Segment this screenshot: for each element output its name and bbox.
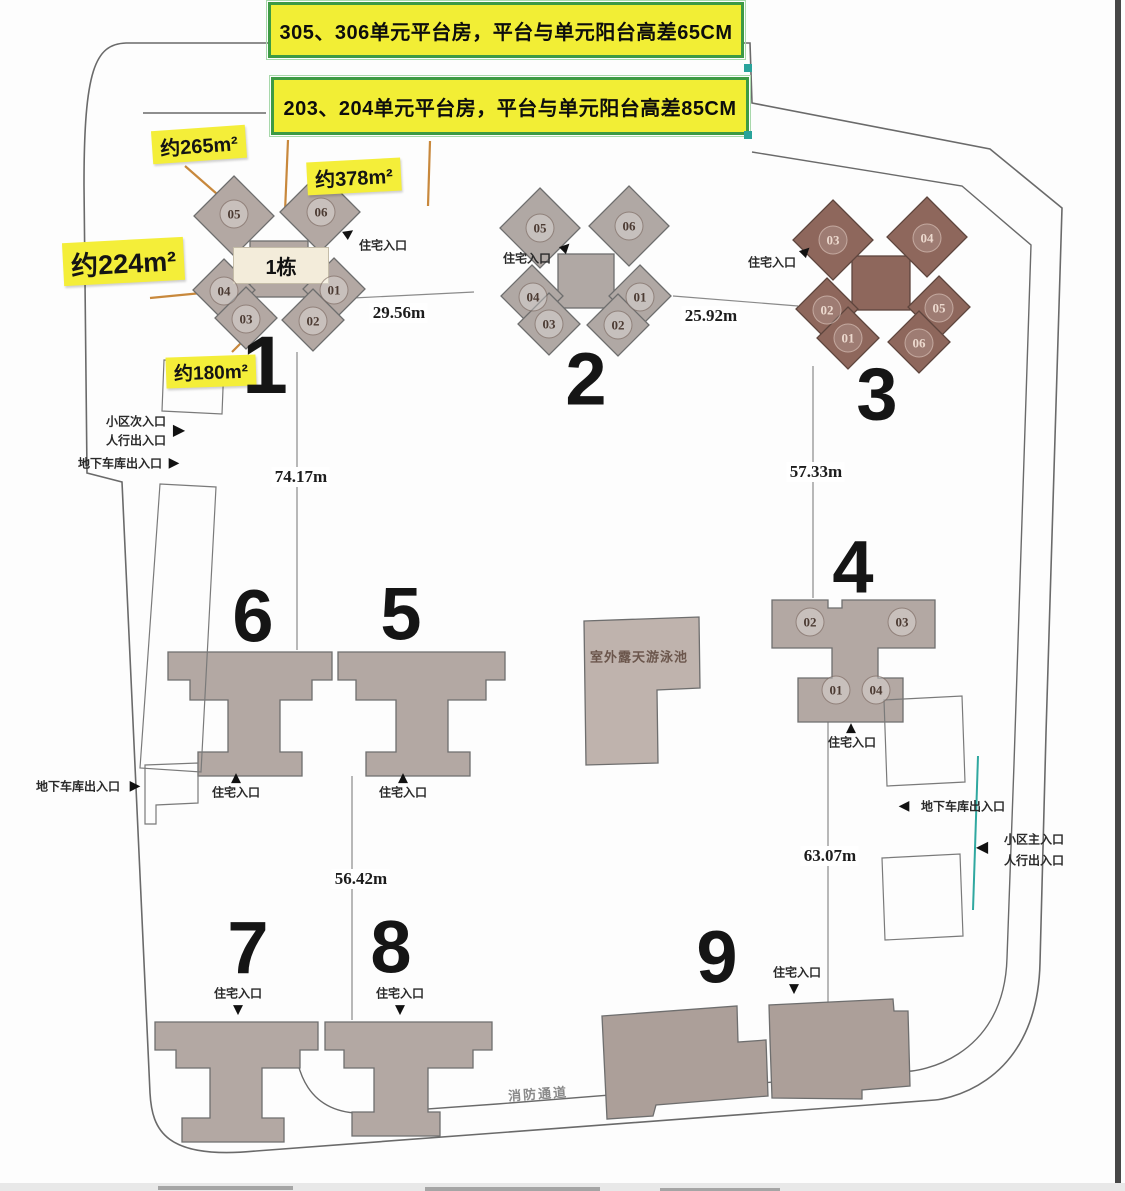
b1-unit-01: 01 [320, 276, 349, 305]
entrance-label-b7: 住宅入口 [214, 985, 262, 1002]
garage-exit-label-left-top: 地下车库出入口 [78, 455, 162, 472]
site-plan-canvas [0, 0, 1125, 1191]
building-9-right-shape [769, 999, 910, 1099]
dim-line-b2-b3 [673, 296, 798, 306]
entrance-arrow-icon-b9: ▼ [789, 983, 799, 996]
building-3-number: 3 [856, 352, 895, 437]
building-9-left-shape [602, 1006, 768, 1119]
building-8-number: 8 [370, 905, 409, 990]
b1-unit-03: 03 [232, 305, 261, 334]
building-5-number: 5 [380, 572, 419, 657]
garage-exit-label-right: 地下车库出入口 [921, 798, 1005, 815]
entrance-arrow-icon-b8: ▼ [395, 1004, 405, 1017]
building-6-number: 6 [232, 574, 271, 659]
selection-handle-bottom[interactable] [744, 131, 752, 139]
building-7-shape [155, 1022, 318, 1142]
b2-unit-06: 06 [615, 212, 644, 241]
entrance-label-b5: 住宅入口 [379, 784, 427, 801]
garage-exit-arrow-icon-left-top: ▶ [169, 456, 180, 470]
building-8-shape [325, 1022, 492, 1136]
secondary-entrance-label: 小区次入口 [106, 413, 166, 430]
garage-exit-arrow-icon-right: ◀ [899, 799, 910, 813]
building-7-number: 7 [227, 906, 266, 991]
secondary-entrance-arrow-icon: ▶ [173, 422, 185, 438]
building-5-shape [338, 652, 505, 776]
area-label-265: 约265m² [151, 125, 247, 164]
dimension-b4-b9: 63.07m [801, 846, 859, 866]
b4-unit-04: 04 [862, 676, 891, 705]
building-2-shape [500, 186, 671, 356]
building-4-number: 4 [832, 525, 871, 610]
b2-unit-02: 02 [604, 311, 633, 340]
pool-label: 室外露天游泳池 [590, 647, 688, 666]
area-label-378: 约378m² [306, 158, 401, 196]
b1-unit-04: 04 [210, 277, 239, 306]
entrance-label-b4: 住宅入口 [828, 734, 876, 751]
b1-unit-06: 06 [307, 198, 336, 227]
site-plan-screenshot: 305、306单元平台房，平台与单元阳台高差65CM 203、204单元平台房，… [0, 0, 1125, 1191]
dimension-b3-b4: 57.33m [787, 462, 845, 482]
b2-unit-05: 05 [526, 214, 555, 243]
dimension-b1-b6: 74.17m [272, 467, 330, 487]
entrance-label-b8: 住宅入口 [376, 985, 424, 1002]
pedestrian-exit-label-left: 人行出入口 [106, 432, 166, 449]
screenshot-right-edge [1115, 0, 1121, 1191]
b2-unit-03: 03 [535, 310, 564, 339]
banner-305-306: 305、306单元平台房，平台与单元阳台高差65CM [268, 2, 744, 58]
pool-shape [584, 617, 700, 765]
b4-unit-01: 01 [822, 676, 851, 705]
pedestrian-exit-label-right: 人行出入口 [1004, 852, 1064, 869]
entrance-label-b3: 住宅入口 [748, 254, 796, 271]
area-label-224: 约224m² [62, 237, 185, 286]
building-3-shape [793, 197, 970, 373]
main-entrance-label: 小区主入口 [1004, 831, 1064, 848]
b3-unit-02: 02 [813, 296, 842, 325]
building-6-shape [168, 652, 332, 776]
outline-rect-right-b [882, 854, 963, 940]
entrance-label-b1: 住宅入口 [359, 237, 407, 254]
b1-unit-02: 02 [299, 307, 328, 336]
garage-exit-arrow-icon-left-bottom: ▶ [130, 779, 141, 793]
b4-unit-02: 02 [796, 608, 825, 637]
bottom-artifact-2 [425, 1187, 600, 1191]
b3-unit-05: 05 [925, 294, 954, 323]
building-2-number: 2 [565, 337, 604, 422]
building-9-number: 9 [696, 915, 735, 1000]
b4-unit-03: 03 [888, 608, 917, 637]
bottom-artifact-1 [158, 1186, 293, 1190]
dimension-b5-b8: 56.42m [332, 869, 390, 889]
entrance-label-b2: 住宅入口 [503, 250, 551, 267]
leader-banner-right [428, 141, 430, 206]
entrance-arrow-icon-b7: ▼ [233, 1004, 243, 1017]
b3-unit-03: 03 [819, 226, 848, 255]
dimension-b1-b2: 29.56m [370, 303, 428, 323]
selection-handle-top[interactable] [744, 64, 752, 72]
outline-step-left [145, 763, 198, 824]
teal-line [973, 756, 978, 910]
b2-unit-01: 01 [626, 283, 655, 312]
dimension-b2-b3: 25.92m [682, 306, 740, 326]
entrance-label-b6: 住宅入口 [212, 784, 260, 801]
b2-unit-04: 04 [519, 283, 548, 312]
b3-unit-06: 06 [905, 329, 934, 358]
b3-unit-01: 01 [834, 324, 863, 353]
outline-ramp-long [140, 484, 216, 772]
b3-unit-04: 04 [913, 224, 942, 253]
entrance-label-b9: 住宅入口 [773, 964, 821, 981]
main-entrance-arrow-icon: ◀ [976, 839, 988, 855]
garage-exit-label-left-bottom: 地下车库出入口 [36, 778, 120, 795]
dim-line-b1-b2 [353, 292, 474, 298]
leader-banner-left [285, 140, 288, 212]
building-1-band: 1栋 [233, 247, 329, 284]
b1-unit-05: 05 [220, 200, 249, 229]
banner-203-204: 203、204单元平台房，平台与单元阳台高差85CM [271, 77, 749, 135]
